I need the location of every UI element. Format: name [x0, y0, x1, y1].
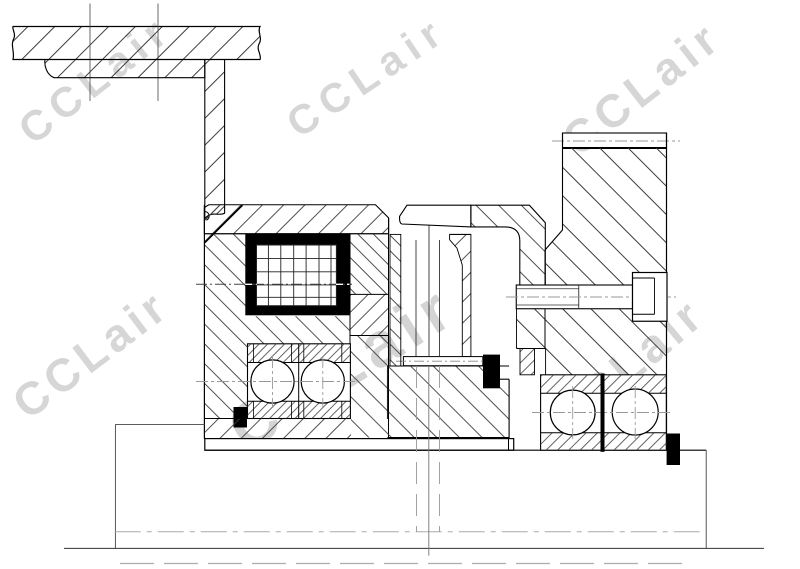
- svg-text:CCLair: CCLair: [278, 6, 455, 146]
- svg-text:CCLair: CCLair: [3, 279, 179, 429]
